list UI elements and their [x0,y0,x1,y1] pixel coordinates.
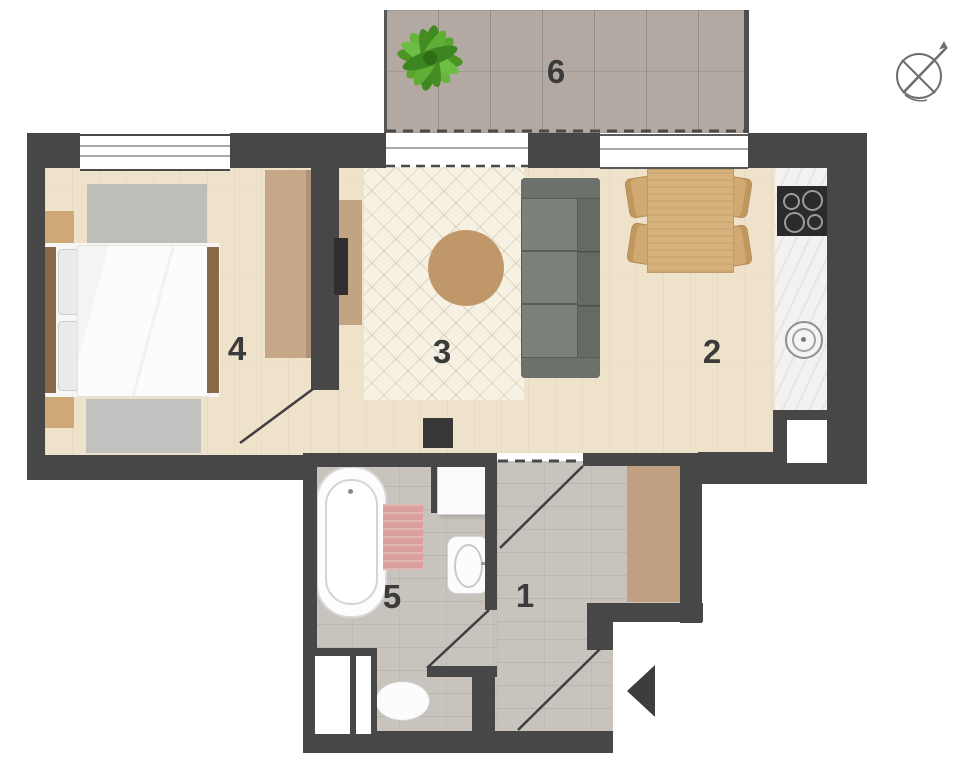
wall-segment [27,455,317,480]
wall-segment [583,453,703,466]
window-pane-line [386,147,528,149]
wall-segment [587,622,613,650]
room-label-living-area: 3 [433,333,451,371]
washbasin-side-panel [431,466,437,513]
bedroom-door-threshold [311,388,339,456]
compass-icon [897,41,947,101]
wall-segment [698,452,867,484]
wall-segment [587,603,703,622]
entrance-arrow-icon [627,665,655,717]
cooktop-burner [802,190,823,211]
room-label-bathroom: 5 [383,578,401,616]
cooktop-burner [807,214,823,230]
sofa-armrest [521,178,600,198]
wall-niche [787,420,827,463]
sofa-seat-cushion [522,252,577,303]
room-label-hallway: 1 [516,577,534,615]
toilet [375,681,430,721]
sofa [521,178,600,378]
bidet-bowl [454,544,483,588]
wall-segment [230,133,386,168]
bed [45,243,220,397]
kitchen-sink-drain [801,337,806,342]
kitchen-window [600,134,748,169]
room-label-balcony: 6 [547,53,565,91]
wall-segment [680,466,702,623]
balcony-floor [386,10,748,133]
wall-segment [305,453,497,467]
bath-rug [383,504,423,570]
structural-column [423,418,453,448]
balcony-edge [744,10,749,133]
cooktop-burner [783,193,800,210]
bedroom-rug-top [87,184,207,243]
bedroom-rug-bottom [86,399,201,453]
bathroom-window-pane [315,656,350,734]
sofa-seat-cushion [522,305,577,357]
wall-segment [485,453,497,610]
wall-segment [303,453,317,655]
cooktop-burner [784,212,805,233]
bathtub-faucet [348,489,353,494]
hallway-wardrobe [627,466,680,602]
bed-headboard [45,247,56,393]
wall-segment [472,666,495,740]
room-label-kitchen-dining: 2 [703,333,721,371]
balcony-sliding-door [386,134,528,165]
bathroom-window-pane [356,656,371,734]
tv [334,238,348,295]
bedroom-wardrobe [265,170,311,358]
washbasin [437,466,489,515]
dining-table [647,169,734,273]
wall-segment [27,133,45,480]
room-label-bedroom: 4 [228,330,246,368]
balcony-edge [384,10,387,133]
bidet [447,536,489,594]
kitchen-sink [785,321,823,359]
bedroom-window [80,134,230,171]
nightstand-bottom [45,397,74,428]
bed-duvet [77,245,209,397]
cooktop [777,186,827,236]
bathtub-basin [325,479,378,605]
sofa-seat-cushion [522,199,577,250]
bathtub [316,466,387,618]
nightstand-top [45,211,74,243]
sofa-backrest [578,199,600,357]
sofa-armrest [521,358,600,378]
wall-segment [827,133,867,484]
window-pane-line [80,155,230,157]
wall-segment [528,133,600,168]
window-pane-line [80,145,230,147]
bed-footboard [207,247,219,393]
floor-plan-canvas: 1 2 3 4 5 6 [0,0,966,768]
window-pane-line [600,148,748,150]
coffee-table [428,230,504,306]
